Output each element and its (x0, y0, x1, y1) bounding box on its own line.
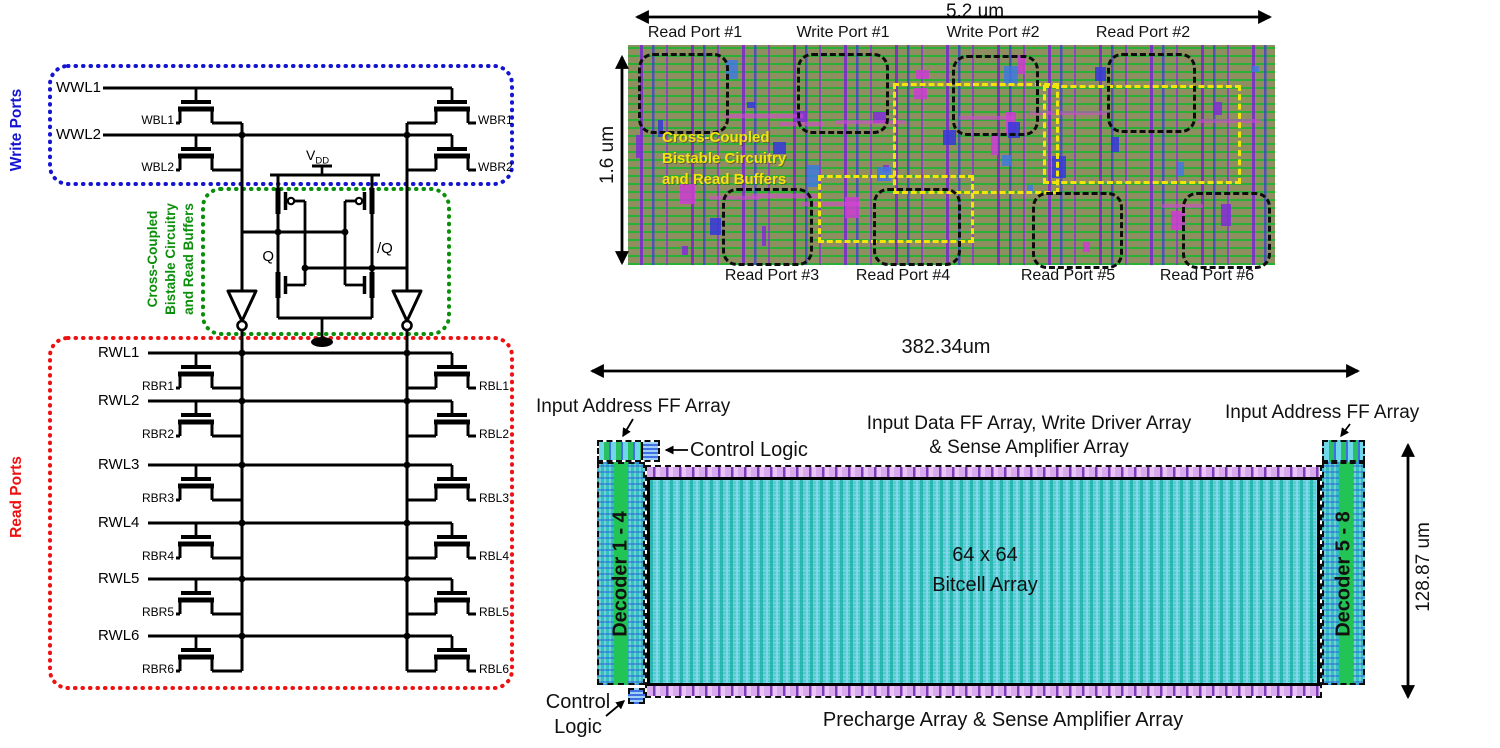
vdd-label: VDD (306, 147, 329, 167)
pointer-input-address-right (1341, 424, 1350, 436)
layout-texture (916, 70, 929, 79)
pmos-bubble (288, 198, 294, 204)
read-bitline-left-label: RBR3 (142, 491, 174, 505)
cell-layout-width-label: 5.2 um (905, 1, 1045, 23)
inverter-bubble (403, 321, 412, 330)
write-bitline-right-label: WBR1 (478, 113, 513, 127)
junction-dot (239, 462, 246, 469)
junction-dot (342, 229, 349, 236)
read-bitline-right-label: RBL6 (479, 662, 509, 676)
junction-dot (404, 633, 411, 640)
read-bitline-right-label: RBL3 (479, 491, 509, 505)
top-port-label-4: Read Port #2 (1096, 24, 1190, 42)
read-buffer-inverter (228, 291, 256, 321)
address-ff-stripes (599, 442, 641, 460)
vss-ground-symbol (311, 337, 333, 347)
bitcell-schematic: Write PortsRead PortsCross-CoupledBistab… (0, 0, 540, 748)
read-ports-label: Read Ports (8, 456, 25, 538)
read-port-5-box (1032, 192, 1123, 269)
sense-amp-row-top (647, 467, 1320, 477)
input-address-ff-array-right (1322, 440, 1365, 462)
cell-box-label-line3: and Read Buffers (181, 203, 196, 315)
cell-box-label-line2: Bistable Circuitry (163, 203, 178, 315)
junction-dot (239, 633, 246, 640)
read-wordline-label: RWL4 (98, 514, 139, 531)
layout-texture (1095, 67, 1106, 81)
read-buffer-inverter (393, 291, 421, 321)
input-data-label-line1: Input Data FF Array, Write Driver Array (824, 413, 1234, 435)
control-logic-bottom-line2: Logic (528, 716, 628, 739)
read-wordline-label: RWL3 (98, 456, 139, 473)
read-wordline-label: RWL5 (98, 570, 139, 587)
junction-dot (404, 520, 411, 527)
read-port-3-box (722, 188, 813, 266)
read-bitline-right-label: RBL4 (479, 549, 509, 563)
array-name-label: Bitcell Array (885, 574, 1085, 597)
read-wordline-label: RWL6 (98, 627, 139, 644)
read-bitline-left-label: RBR5 (142, 605, 174, 619)
control-logic-block-top (641, 442, 658, 460)
junction-dot (275, 229, 282, 236)
write-ports-box (50, 66, 512, 184)
cell-layout-height-label: 1.6 um (597, 126, 619, 184)
inverter-bubble (238, 321, 247, 330)
array-size-label: 64 x 64 (885, 544, 1085, 567)
layout-texture (710, 218, 721, 235)
cell-region-label-line2: Bistable Circuitry (662, 150, 786, 167)
read-port-6-box (1182, 192, 1271, 269)
layout-texture (682, 246, 688, 255)
figure-canvas: Write PortsRead PortsCross-CoupledBistab… (0, 0, 1500, 748)
write-ports-label: Write Ports (8, 89, 25, 171)
read-bitline-right-label: RBL1 (479, 379, 509, 393)
layout-texture (1251, 66, 1259, 72)
write-wordline-label: WWL1 (56, 79, 101, 96)
write-bitline-left-label: WBL1 (141, 113, 174, 127)
junction-dot (404, 462, 411, 469)
read-bitline-left-label: RBR1 (142, 379, 174, 393)
decoder-right-label: Decoder 5 - 8 (1333, 511, 1356, 637)
top-port-label-2: Write Port #1 (796, 24, 889, 42)
bottom-port-label-3: Read Port #5 (1021, 267, 1115, 285)
q-node-label: Q (262, 248, 274, 265)
precharge-row-bottom (647, 686, 1320, 696)
pointer-input-address-left (623, 419, 633, 436)
macro-width-label: 382.34um (846, 336, 1046, 359)
layout-magenta-strip (724, 114, 803, 118)
write-port-1-box (797, 53, 889, 134)
read-bitline-left-label: RBR2 (142, 427, 174, 441)
write-wordline-label: WWL2 (56, 126, 101, 143)
pmos-bubble (356, 198, 362, 204)
cell-region-label-line1: Cross-Coupled (662, 129, 770, 146)
control-logic-bottom-line1: Control (528, 691, 628, 714)
read-bitline-left-label: RBR4 (142, 549, 174, 563)
junction-dot (239, 576, 246, 583)
junction-dot (369, 265, 376, 272)
read-bitline-right-label: RBL5 (479, 605, 509, 619)
read-port-4-box (873, 188, 961, 266)
layout-texture (636, 135, 641, 158)
read-port-2-box (1107, 53, 1196, 133)
junction-dot (239, 520, 246, 527)
control-logic-top-label: Control Logic (690, 439, 808, 462)
bottom-port-label-1: Read Port #3 (725, 267, 819, 285)
input-address-right-label: Input Address FF Array (1225, 402, 1419, 424)
bottom-port-label-2: Read Port #4 (856, 267, 950, 285)
top-port-label-1: Read Port #1 (648, 24, 742, 42)
control-logic-block-bottom (628, 688, 645, 704)
qbar-node-label: /Q (377, 240, 393, 257)
write-port-2-box (952, 55, 1039, 136)
precharge-label: Precharge Array & Sense Amplifier Array (788, 709, 1218, 732)
decoder-left-label: Decoder 1 - 4 (610, 511, 633, 637)
junction-dot (302, 265, 309, 272)
read-port-1-box (638, 53, 729, 134)
input-data-label-line2: & Sense Amplifier Array (824, 437, 1234, 459)
bottom-port-label-4: Read Port #6 (1160, 267, 1254, 285)
write-bitline-left-label: WBL2 (141, 160, 174, 174)
input-address-ff-array-left (597, 440, 660, 462)
junction-dot (404, 398, 411, 405)
top-port-label-3: Write Port #2 (946, 24, 1039, 42)
junction-dot (404, 350, 411, 357)
macro-height-label: 128.87 um (1413, 522, 1435, 612)
junction-dot (239, 398, 246, 405)
read-bitline-left-label: RBR6 (142, 662, 174, 676)
write-bitline-right-label: WBR2 (478, 160, 513, 174)
read-bitline-right-label: RBL2 (479, 427, 509, 441)
read-wordline-label: RWL1 (98, 344, 139, 361)
read-wordline-label: RWL2 (98, 392, 139, 409)
junction-dot (239, 350, 246, 357)
cell-region-label-line3: and Read Buffers (662, 171, 786, 188)
junction-dot (404, 576, 411, 583)
cell-box-label-line1: Cross-Coupled (145, 211, 160, 308)
input-address-left-label: Input Address FF Array (536, 396, 730, 418)
bitcell-layout-panel: Cross-CoupledBistable Circuitryand Read … (628, 45, 1275, 265)
layout-texture (747, 102, 755, 108)
